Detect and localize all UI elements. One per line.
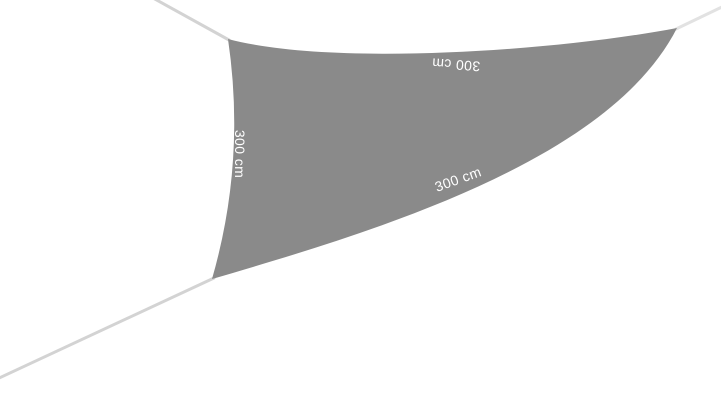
shade-sail-illustration: 300 cm 300 cm 300 cm bbox=[0, 0, 721, 414]
rope-top-left bbox=[153, 0, 229, 40]
rope-top-right bbox=[676, 6, 721, 29]
dimension-label-top: 300 cm bbox=[431, 55, 480, 74]
shade-sail-product-image: 300 cm 300 cm 300 cm bbox=[0, 0, 721, 414]
rope-bottom-left bbox=[0, 278, 214, 379]
dimension-label-left: 300 cm bbox=[232, 130, 248, 178]
